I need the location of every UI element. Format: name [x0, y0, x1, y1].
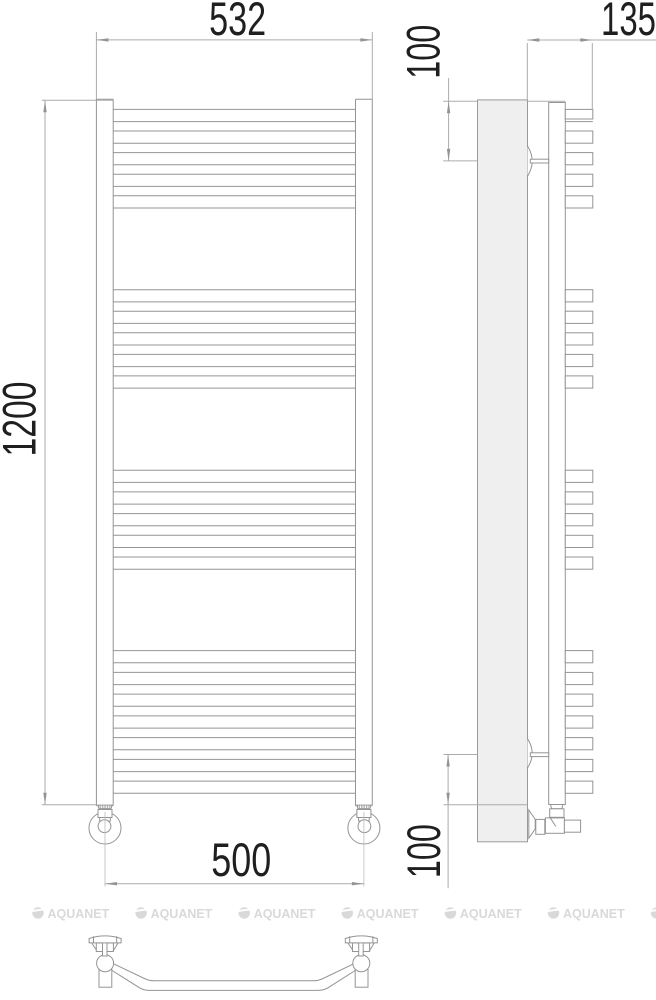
svg-text:500: 500 — [211, 833, 271, 886]
svg-text:AQUANET: AQUANET — [151, 906, 213, 921]
svg-text:AQUANET: AQUANET — [563, 906, 625, 921]
svg-text:AQUANET: AQUANET — [460, 906, 522, 921]
svg-text:135: 135 — [601, 0, 656, 45]
svg-text:100: 100 — [397, 824, 450, 878]
svg-text:AQUANET: AQUANET — [254, 906, 316, 921]
svg-text:AQUANET: AQUANET — [357, 906, 419, 921]
svg-text:100: 100 — [397, 25, 450, 79]
svg-text:AQUANET: AQUANET — [48, 906, 110, 921]
svg-text:1200: 1200 — [0, 382, 46, 457]
svg-text:532: 532 — [209, 0, 266, 45]
